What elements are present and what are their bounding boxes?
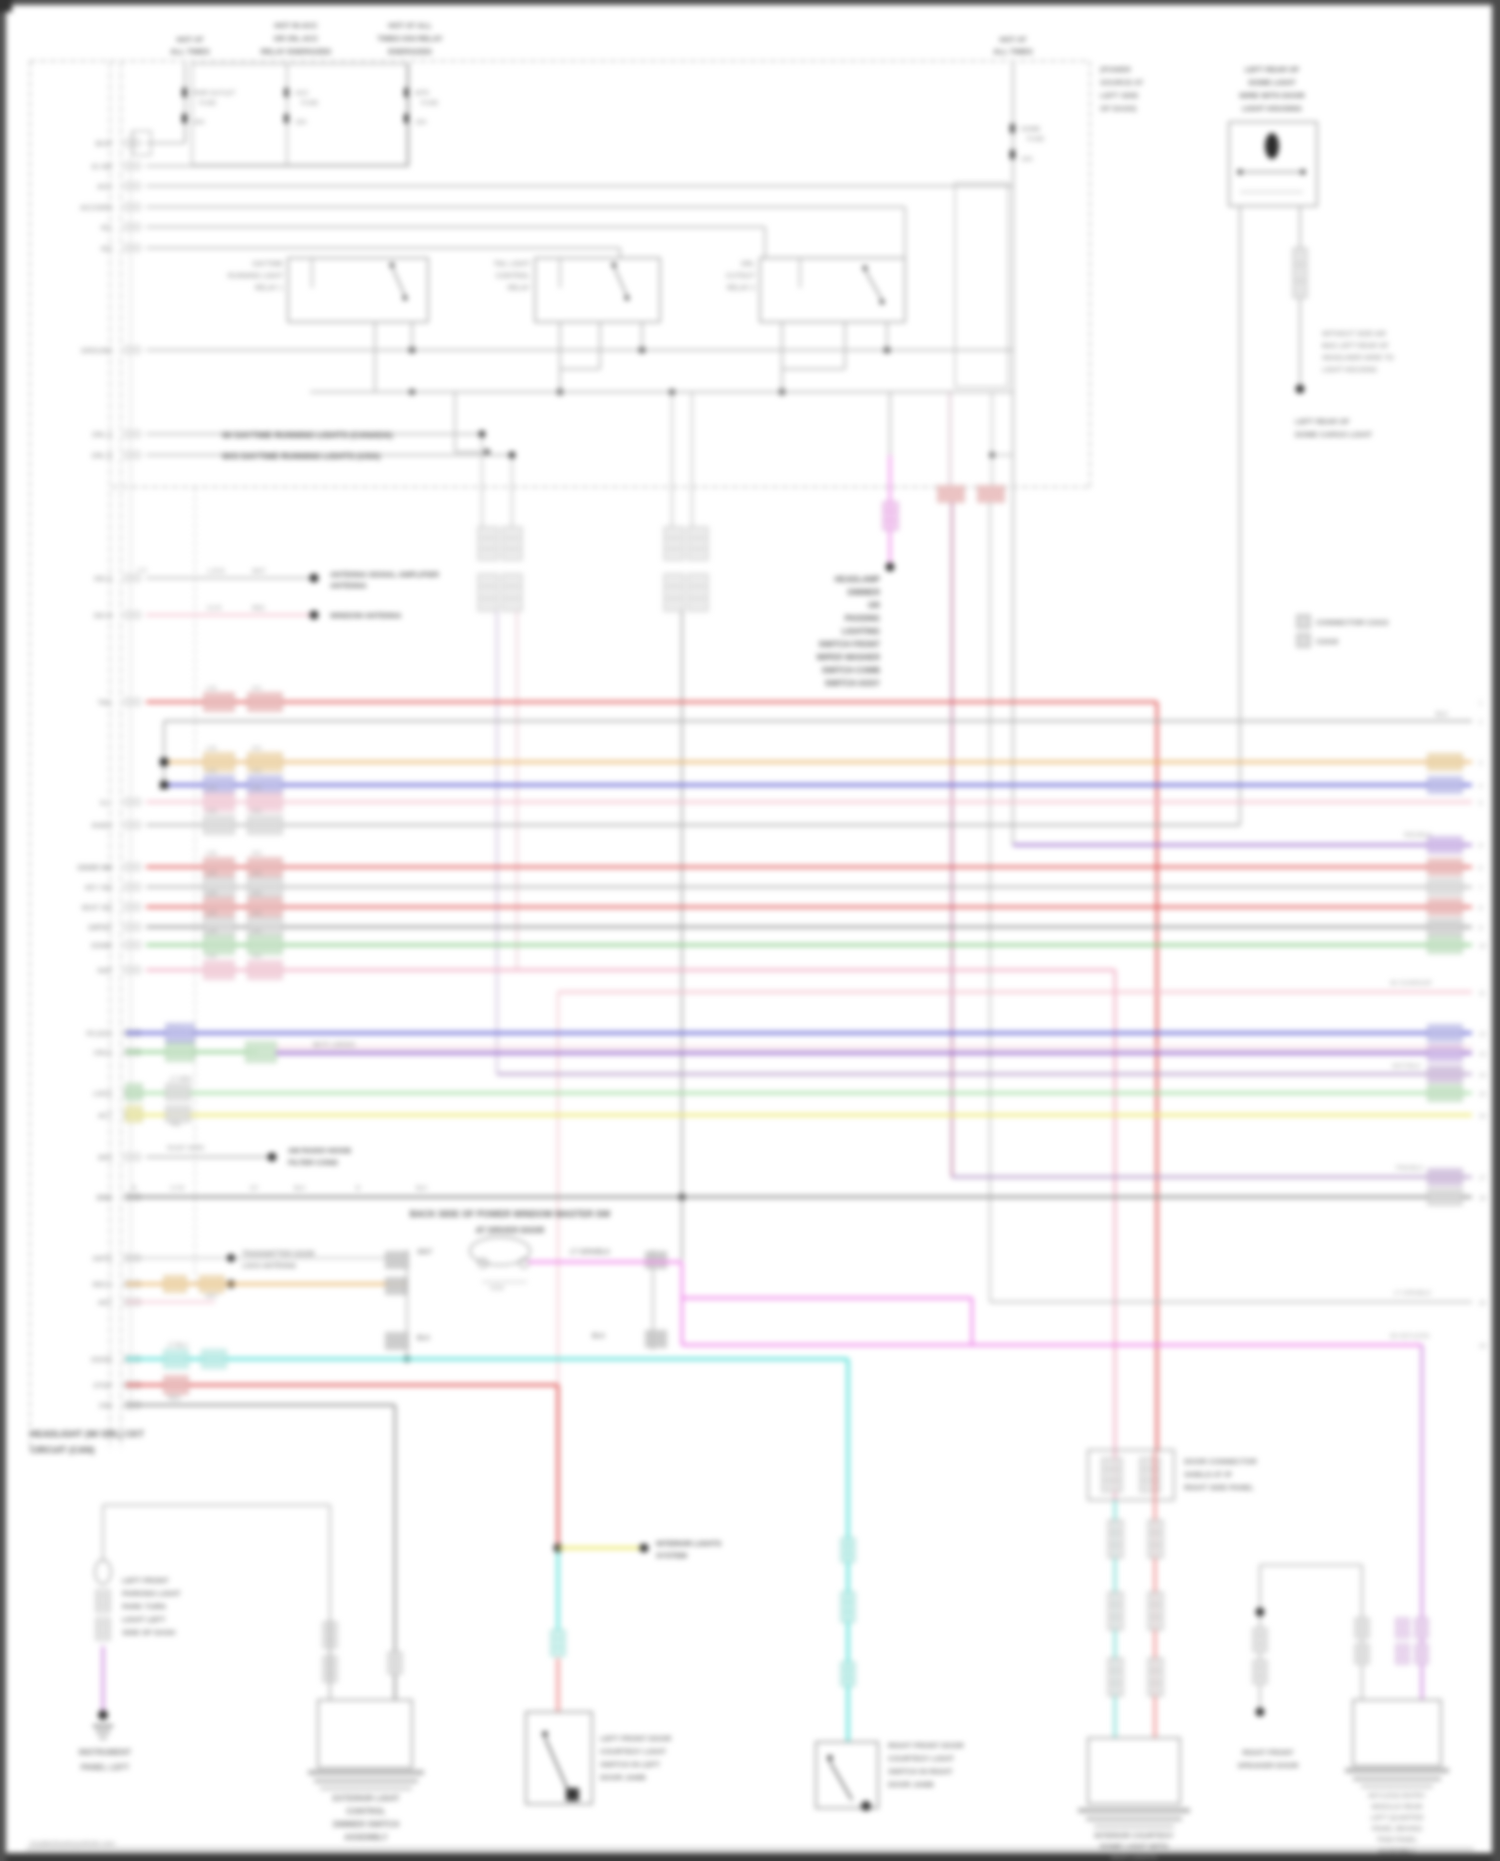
svg-text:OR ON, ACC: OR ON, ACC (274, 34, 319, 43)
svg-text:CONTROL: CONTROL (496, 273, 530, 280)
svg-text:SHIELD AT IP: SHIELD AT IP (1184, 1470, 1232, 1479)
svg-text:SIG A: SIG A (94, 576, 113, 583)
svg-text:SRS: SRS (98, 1155, 113, 1162)
svg-text:IG SW: IG SW (91, 164, 112, 171)
svg-text:BACK SIDE OF POWER WINDOW MAST: BACK SIDE OF POWER WINDOW MASTER SW (410, 1209, 611, 1219)
svg-text:BLK: BLK (417, 1335, 431, 1342)
svg-text:DIM: DIM (99, 1403, 112, 1410)
svg-text:UNLK: UNLK (93, 1050, 112, 1057)
svg-text:GND: GND (96, 1195, 112, 1202)
svg-text:HEADLINER WIRE TO: HEADLINER WIRE TO (1322, 355, 1394, 362)
svg-text:CRTSY: CRTSY (88, 925, 112, 932)
svg-text:R/G: R/G (252, 954, 262, 960)
svg-text:SWITCH ASSY: SWITCH ASSY (825, 679, 881, 688)
svg-text:DRL B: DRL B (92, 453, 113, 460)
svg-text:RECV: RECV (93, 1282, 113, 1289)
svg-text:PANEL BEHIND: PANEL BEHIND (1372, 1826, 1423, 1833)
svg-text:R/G: R/G (252, 911, 262, 917)
svg-text:4847: 4847 (205, 1294, 219, 1300)
svg-text:RIGHT SIDE PANEL: RIGHT SIDE PANEL (1184, 1483, 1254, 1492)
svg-text:STOP: STOP (93, 1383, 112, 1390)
svg-text:SWITCH COMB: SWITCH COMB (822, 666, 880, 675)
svg-text:2.0 B: 2.0 B (170, 1186, 184, 1192)
svg-text:YEL: YEL (170, 1122, 182, 1128)
svg-text:SOURCE AT: SOURCE AT (1100, 78, 1144, 87)
svg-text:RELAY 2: RELAY 2 (727, 285, 755, 292)
svg-text:FUSE: FUSE (1027, 136, 1045, 143)
svg-text:R/G: R/G (252, 686, 262, 692)
svg-text:RUNNING LIGHT: RUNNING LIGHT (228, 273, 284, 280)
svg-text:0.85: 0.85 (206, 911, 217, 917)
svg-text:0.85: 0.85 (206, 686, 217, 692)
svg-text:ACT: ACT (98, 1113, 113, 1120)
svg-text:DRL: DRL (741, 261, 755, 268)
svg-text:CUTOUT: CUTOUT (726, 273, 756, 280)
svg-text:WITHOUT SIDE AIR: WITHOUT SIDE AIR (1322, 331, 1386, 338)
svg-text:RIGHT FRONT DOOR: RIGHT FRONT DOOR (888, 1741, 964, 1750)
svg-text:R/G: R/G (252, 809, 262, 815)
svg-text:PARKING LIGHT: PARKING LIGHT (122, 1589, 181, 1598)
svg-text:B/UP: B/UP (96, 141, 113, 148)
svg-text:RIGHT FRONT: RIGHT FRONT (1242, 1748, 1294, 1757)
svg-text:PNK/BLK: PNK/BLK (1396, 1165, 1424, 1172)
svg-text:MTR: MTR (415, 90, 429, 97)
svg-text:R/G: R/G (252, 746, 262, 752)
svg-text:DOME LIGHT: DOME LIGHT (1248, 78, 1295, 87)
svg-text:RELAY: RELAY (508, 285, 531, 292)
svg-text:8: 8 (1479, 906, 1483, 912)
svg-text:HOT AT ALL: HOT AT ALL (388, 21, 432, 30)
svg-text:4: 4 (1479, 784, 1483, 790)
svg-text:TAIL: TAIL (98, 700, 112, 707)
svg-text:0.5 R: 0.5 R (207, 606, 222, 612)
svg-text:OR: OR (868, 601, 880, 610)
svg-text:XMTR: XMTR (92, 1256, 112, 1263)
svg-text:SEAT SW: SEAT SW (81, 905, 112, 912)
svg-text:WHT: WHT (252, 569, 266, 575)
svg-text:GROUND: GROUND (81, 348, 112, 355)
svg-text:LOCK ANTENNA: LOCK ANTENNA (242, 1263, 296, 1270)
svg-text:LT GRN/BLK: LT GRN/BLK (570, 1249, 611, 1256)
svg-text:WIPER WASHER: WIPER WASHER (816, 653, 880, 662)
svg-text:DOOR CONNECTOR: DOOR CONNECTOR (1184, 1457, 1257, 1466)
svg-text:DOOR SW: DOOR SW (78, 865, 113, 872)
svg-text:0.85: 0.85 (206, 954, 217, 960)
svg-text:HOT AT: HOT AT (999, 35, 1026, 44)
svg-text:RED: RED (252, 606, 265, 612)
svg-text:1: 1 (1479, 701, 1483, 707)
svg-text:1.25 B: 1.25 B (207, 569, 224, 575)
svg-text:GY: GY (250, 1186, 259, 1192)
svg-text:W/ P. LOCKS: W/ P. LOCKS (313, 1042, 355, 1049)
svg-text:ALL TIMES: ALL TIMES (993, 47, 1032, 56)
svg-text:ANTENNA SIGNAL AMPLIFIER: ANTENNA SIGNAL AMPLIFIER (330, 570, 439, 579)
svg-text:3: 3 (1479, 761, 1483, 767)
svg-text:12: 12 (1479, 1032, 1486, 1038)
svg-text:LEFT FRONT: LEFT FRONT (122, 1576, 169, 1585)
svg-text:DOME: DOME (1021, 126, 1041, 133)
svg-text:LIGHT LEFT: LIGHT LEFT (122, 1615, 166, 1624)
svg-text:P/LOCK: P/LOCK (86, 1031, 112, 1038)
svg-text:CONNECTOR C2410: CONNECTOR C2410 (1316, 618, 1388, 627)
svg-text:AM RADIO NOISE: AM RADIO NOISE (288, 1146, 351, 1155)
svg-text:15A: 15A (193, 119, 205, 126)
svg-text:ASSEMBLY: ASSEMBLY (1378, 1848, 1416, 1855)
svg-text:COURTESY LIGHT: COURTESY LIGHT (600, 1747, 667, 1756)
svg-text:0.85: 0.85 (206, 769, 217, 775)
svg-text:BAG LEFT REAR OF: BAG LEFT REAR OF (1322, 343, 1389, 350)
svg-text:DOME LIGHT WITH: DOME LIGHT WITH (1100, 1842, 1168, 1851)
svg-text:RED/BLK: RED/BLK (1404, 832, 1432, 839)
svg-text:DOME: DOME (91, 943, 112, 950)
svg-text:R/G: R/G (252, 786, 262, 792)
svg-text:5: 5 (1479, 801, 1483, 807)
svg-text:CONTROL: CONTROL (346, 1807, 386, 1816)
svg-text:TRIM PANEL: TRIM PANEL (1376, 1837, 1418, 1844)
svg-text:9: 9 (1479, 926, 1483, 932)
svg-text:0.85: 0.85 (206, 871, 217, 877)
svg-text:ACC: ACC (295, 90, 309, 97)
svg-text:BLK: BLK (294, 1186, 305, 1192)
svg-text:RELAY 1: RELAY 1 (255, 285, 283, 292)
svg-text:OF DASH): OF DASH) (1100, 104, 1137, 113)
svg-text:ENERGIZED: ENERGIZED (388, 47, 432, 56)
svg-text:COURTESY LIGHT: COURTESY LIGHT (888, 1754, 955, 1763)
svg-text:PASSING: PASSING (845, 614, 880, 623)
svg-text:LEFT REAR OF: LEFT REAR OF (1245, 65, 1300, 74)
svg-text:FILTER COND: FILTER COND (288, 1158, 338, 1167)
svg-text:0.85: 0.85 (206, 891, 217, 897)
svg-text:19: 19 (1479, 1344, 1486, 1350)
svg-text:KEYLESS ENTRY: KEYLESS ENTRY (1368, 1793, 1426, 1800)
svg-text:INTERIOR COURTESY: INTERIOR COURTESY (1094, 1831, 1174, 1840)
svg-text:SPEAKER DOOR: SPEAKER DOOR (1238, 1761, 1299, 1770)
svg-text:LEFT FRONT DOOR: LEFT FRONT DOOR (600, 1734, 672, 1743)
svg-text:0.85: 0.85 (206, 746, 217, 752)
svg-text:17: 17 (1479, 1176, 1486, 1182)
svg-text:RHEO: RHEO (92, 823, 113, 830)
svg-text:DOME CARGO LIGHT: DOME CARGO LIGHT (1295, 430, 1372, 439)
svg-text:W/ SUNROOF: W/ SUNROOF (1390, 980, 1432, 987)
svg-text:BLK: BLK (592, 1333, 606, 1340)
svg-text:ALL TIMES: ALL TIMES (170, 47, 209, 56)
svg-text:FUSE: FUSE (301, 100, 319, 107)
svg-text:LEFT QUARTER: LEFT QUARTER (1370, 1815, 1423, 1822)
svg-text:NSW: NSW (490, 1286, 504, 1292)
svg-text:W/ KEYLESS: W/ KEYLESS (1390, 1333, 1430, 1340)
svg-text:2: 2 (1479, 720, 1483, 726)
svg-text:20: 20 (1479, 1301, 1486, 1307)
svg-text:TRANSMITTER DOOR: TRANSMITTER DOOR (242, 1251, 315, 1258)
svg-text:INTERIOR LIGHTS: INTERIOR LIGHTS (656, 1539, 721, 1548)
svg-text:R/G: R/G (252, 871, 262, 877)
svg-text:MAP LIGHTS: MAP LIGHTS (1111, 1853, 1157, 1861)
svg-text:15: 15 (1479, 1092, 1486, 1098)
svg-text:LT GRN: LT GRN (170, 1077, 191, 1083)
svg-text:PWR OUTLET: PWR OUTLET (193, 90, 236, 97)
svg-text:WIRE WITH DOOR: WIRE WITH DOOR (1239, 91, 1305, 100)
svg-text:0.85: 0.85 (206, 929, 217, 935)
svg-text:LT GRN/BLK: LT GRN/BLK (1394, 1290, 1432, 1297)
svg-text:RAP: RAP (98, 968, 113, 975)
svg-text:TIMES IGN RELAY: TIMES IGN RELAY (377, 34, 442, 43)
svg-text:ANTENNA: ANTENNA (330, 581, 367, 590)
svg-text:10: 10 (1479, 944, 1486, 950)
svg-text:R/G: R/G (252, 929, 262, 935)
svg-text:P: P (1479, 844, 1483, 850)
svg-text:HEADLIGHT (W/ DRL) CKT: HEADLIGHT (W/ DRL) CKT (30, 1429, 144, 1439)
svg-text:11: 11 (1479, 991, 1486, 997)
svg-text:ANT: ANT (98, 1300, 113, 1307)
svg-text:W/ DAYTIME RUNNING LIGHTS (CAN: W/ DAYTIME RUNNING LIGHTS (CANADA) (222, 430, 393, 440)
svg-text:0.85: 0.85 (206, 786, 217, 792)
svg-text:IG2: IG2 (101, 246, 112, 253)
svg-text:15A: 15A (415, 119, 427, 126)
svg-text:DOOR: DOOR (91, 1357, 112, 1364)
svg-text:LEFT REAR OF: LEFT REAR OF (1295, 417, 1350, 426)
svg-text:BLK: BLK (1436, 711, 1449, 718)
svg-text:CIRCUIT (CAN): CIRCUIT (CAN) (30, 1445, 95, 1455)
svg-text:INSTRUMENT: INSTRUMENT (79, 1748, 132, 1757)
svg-text:B: B (132, 1186, 136, 1192)
svg-text:C15: C15 (137, 568, 147, 574)
svg-text:HOT AT: HOT AT (176, 35, 203, 44)
svg-text:DAYTIME: DAYTIME (252, 261, 283, 268)
svg-text:R/G: R/G (252, 769, 262, 775)
svg-text:PANEL LEFT: PANEL LEFT (81, 1763, 130, 1772)
svg-text:0.85: 0.85 (206, 851, 217, 857)
svg-text:DOOR JAMB: DOOR JAMB (888, 1780, 934, 1789)
svg-text:MODULE REAR: MODULE REAR (1371, 1804, 1422, 1811)
svg-text:TAIL LIGHT: TAIL LIGHT (493, 261, 530, 268)
svg-text:R/G: R/G (252, 891, 262, 897)
svg-text:IG1: IG1 (101, 225, 112, 232)
svg-text:ASSEMBLY: ASSEMBLY (344, 1833, 388, 1842)
svg-text:FUSE: FUSE (421, 100, 439, 107)
svg-text:RELAY ENERGIZED: RELAY ENERGIZED (261, 47, 332, 56)
svg-text:WHT/BLK: WHT/BLK (1392, 1063, 1422, 1070)
svg-text:10A: 10A (1021, 156, 1033, 163)
svg-text:PARK TURN: PARK TURN (122, 1602, 166, 1611)
svg-text:SWITCH IN RIGHT: SWITCH IN RIGHT (888, 1767, 953, 1776)
svg-text:B: B (356, 1186, 360, 1192)
svg-text:(POWER: (POWER (1100, 65, 1131, 74)
svg-text:SIG B: SIG B (93, 613, 112, 620)
svg-text:C2418: C2418 (1316, 637, 1338, 646)
svg-text:SWITCH FRONT: SWITCH FRONT (819, 640, 880, 649)
svg-text:SYSTEM: SYSTEM (656, 1551, 687, 1560)
svg-text:LEFT SIDE: LEFT SIDE (1100, 91, 1138, 100)
svg-text:LIGHTING: LIGHTING (842, 627, 880, 636)
svg-text:ROOF WIRE: ROOF WIRE (167, 1145, 205, 1152)
svg-text:13: 13 (1479, 1052, 1486, 1058)
svg-text:SIDE OF DASH: SIDE OF DASH (122, 1628, 175, 1637)
svg-text:DIMMER: DIMMER (848, 588, 881, 597)
svg-text:6: 6 (1479, 866, 1483, 872)
svg-text:DOOR JAMB: DOOR JAMB (600, 1773, 646, 1782)
svg-text:7: 7 (1479, 886, 1483, 892)
svg-text:ILL-: ILL- (100, 800, 113, 807)
svg-text:LT BLU: LT BLU (168, 1343, 188, 1349)
svg-text:KEY SW: KEY SW (85, 885, 112, 892)
svg-text:FUSE: FUSE (199, 100, 217, 107)
svg-text:15A: 15A (295, 119, 307, 126)
svg-text:WINDOW ANTENNA: WINDOW ANTENNA (330, 611, 402, 620)
svg-text:BLK: BLK (416, 1186, 427, 1192)
svg-text:W/O DAYTIME RUNNING LIGHTS (US: W/O DAYTIME RUNNING LIGHTS (USA) (222, 451, 381, 461)
svg-text:HOT IN ACC: HOT IN ACC (274, 21, 318, 30)
svg-text:14: 14 (1479, 1073, 1486, 1079)
svg-text:ACC: ACC (97, 184, 112, 191)
svg-text:ACC/GEN: ACC/GEN (80, 205, 112, 212)
svg-text:18: 18 (1479, 1196, 1486, 1202)
svg-text:LOCK: LOCK (93, 1091, 112, 1098)
svg-text:LIGHT HOUSING: LIGHT HOUSING (1242, 104, 1302, 113)
svg-text:0.85: 0.85 (206, 809, 217, 815)
svg-text:16: 16 (1479, 1114, 1486, 1120)
svg-text:R/G: R/G (252, 851, 262, 857)
svg-text:troubleshootmyvehicle.com: troubleshootmyvehicle.com (30, 1841, 115, 1848)
svg-text:EXTERIOR LIGHT: EXTERIOR LIGHT (332, 1794, 399, 1803)
svg-text:AT DRIVER DOOR: AT DRIVER DOOR (476, 1226, 545, 1235)
svg-text:LIGHT HOUSING: LIGHT HOUSING (1322, 367, 1377, 374)
svg-text:DIMMER SWITCH: DIMMER SWITCH (333, 1820, 399, 1829)
svg-text:HEADLAMP: HEADLAMP (835, 575, 881, 584)
svg-text:4847: 4847 (417, 1249, 433, 1256)
svg-text:SWITCH IN LEFT: SWITCH IN LEFT (600, 1760, 660, 1769)
svg-text:DRL A: DRL A (92, 432, 112, 439)
svg-text:RED: RED (168, 1396, 181, 1402)
